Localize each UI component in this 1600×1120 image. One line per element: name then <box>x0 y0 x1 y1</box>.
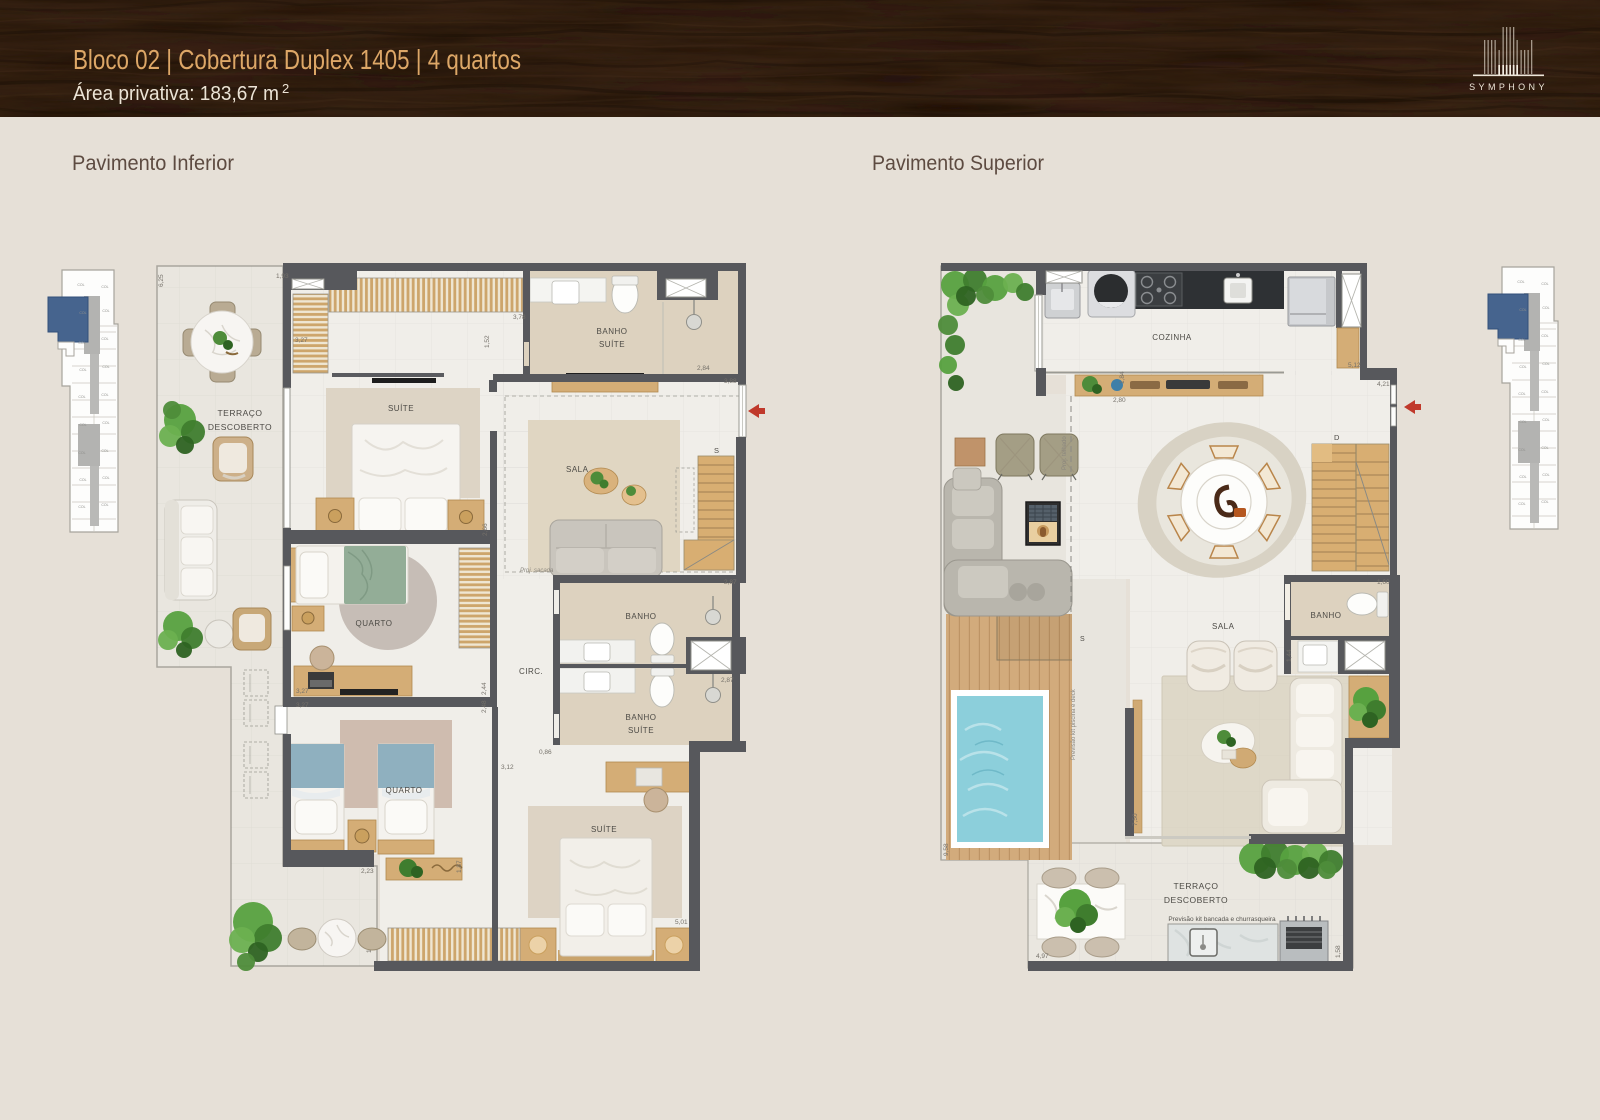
svg-text:S: S <box>714 446 719 455</box>
svg-text:COL: COL <box>1519 365 1526 369</box>
svg-text:SYMPHONY: SYMPHONY <box>1469 82 1548 92</box>
svg-text:SALA: SALA <box>1212 622 1235 631</box>
svg-text:COL: COL <box>101 393 108 397</box>
svg-text:COL: COL <box>102 365 109 369</box>
svg-text:2,23: 2,23 <box>361 868 374 875</box>
svg-text:3,27: 3,27 <box>295 337 308 344</box>
svg-text:2,44: 2,44 <box>481 682 488 695</box>
svg-text:COL: COL <box>102 421 109 425</box>
svg-text:2,84: 2,84 <box>697 365 710 372</box>
svg-text:3,78: 3,78 <box>513 314 526 321</box>
svg-text:4,97: 4,97 <box>1036 953 1049 960</box>
svg-text:COL: COL <box>1541 446 1548 450</box>
svg-text:1,93: 1,93 <box>276 273 289 280</box>
svg-text:COL: COL <box>1542 418 1549 422</box>
svg-text:3,27: 3,27 <box>296 688 309 695</box>
svg-text:COL: COL <box>1519 475 1526 479</box>
svg-text:1,84: 1,84 <box>1119 371 1126 384</box>
svg-text:1,58: 1,58 <box>1335 945 1342 958</box>
svg-text:3,88: 3,88 <box>724 378 737 385</box>
svg-text:Proj. telhado: Proj. telhado <box>1062 436 1068 470</box>
svg-text:2,66: 2,66 <box>482 523 489 536</box>
svg-text:1,60: 1,60 <box>1377 579 1390 586</box>
svg-text:COL: COL <box>1542 362 1549 366</box>
svg-text:2,48: 2,48 <box>481 700 488 713</box>
svg-text:BANHO: BANHO <box>597 327 628 336</box>
svg-text:COZINHA: COZINHA <box>1152 333 1192 342</box>
svg-text:Proj. sacada: Proj. sacada <box>520 568 554 574</box>
svg-text:COL: COL <box>78 395 85 399</box>
svg-text:COL: COL <box>79 423 86 427</box>
svg-text:3,12: 3,12 <box>501 764 514 771</box>
svg-text:COL: COL <box>1541 390 1548 394</box>
svg-text:0,86: 0,86 <box>539 749 552 756</box>
svg-text:2: 2 <box>282 81 289 96</box>
svg-text:SUÍTE: SUÍTE <box>599 340 625 349</box>
svg-text:COL: COL <box>79 478 86 482</box>
svg-text:COL: COL <box>101 337 108 341</box>
svg-text:SALA: SALA <box>566 465 589 474</box>
svg-text:S: S <box>1080 636 1085 643</box>
svg-text:2,87: 2,87 <box>721 677 734 684</box>
svg-text:2,80: 2,80 <box>1113 397 1126 404</box>
svg-text:SUÍTE: SUÍTE <box>388 404 414 413</box>
svg-text:SUÍTE: SUÍTE <box>591 825 617 834</box>
svg-text:COL: COL <box>1542 306 1549 310</box>
svg-text:COL: COL <box>1542 473 1549 477</box>
svg-text:COL: COL <box>1517 280 1524 284</box>
svg-text:Previsão kit piscina e deck: Previsão kit piscina e deck <box>1071 688 1077 760</box>
svg-text:CIRC.: CIRC. <box>519 667 543 676</box>
svg-text:D: D <box>1334 433 1340 442</box>
svg-text:1,52: 1,52 <box>484 335 491 348</box>
svg-text:Área privativa: 183,67 m: Área privativa: 183,67 m <box>73 82 279 105</box>
svg-text:COL: COL <box>77 283 84 287</box>
svg-text:QUARTO: QUARTO <box>386 786 423 795</box>
svg-text:DESCOBERTO: DESCOBERTO <box>1164 895 1228 905</box>
svg-text:COL: COL <box>101 285 108 289</box>
svg-text:Pavimento Inferior: Pavimento Inferior <box>72 151 234 175</box>
svg-text:TERRAÇO: TERRAÇO <box>1173 881 1218 891</box>
svg-text:COL: COL <box>1519 420 1526 424</box>
svg-text:COL: COL <box>1541 282 1548 286</box>
svg-text:COL: COL <box>1518 448 1525 452</box>
svg-text:COL: COL <box>79 368 86 372</box>
svg-text:COL: COL <box>1541 500 1548 504</box>
svg-text:1,87: 1,87 <box>456 860 463 873</box>
svg-text:7,50: 7,50 <box>1132 813 1139 826</box>
svg-text:COL: COL <box>102 309 109 313</box>
svg-text:5,01: 5,01 <box>675 919 688 926</box>
svg-text:6,25: 6,25 <box>158 274 165 287</box>
svg-text:4,21: 4,21 <box>1377 381 1390 388</box>
svg-text:SUÍTE: SUÍTE <box>628 726 654 735</box>
svg-text:COL: COL <box>78 505 85 509</box>
svg-text:QUARTO: QUARTO <box>356 619 393 628</box>
svg-text:3,27: 3,27 <box>296 702 309 709</box>
svg-text:5,12: 5,12 <box>1348 362 1361 369</box>
svg-text:COL: COL <box>79 311 86 315</box>
svg-text:COL: COL <box>1518 338 1525 342</box>
svg-text:1,44: 1,44 <box>1286 649 1293 662</box>
svg-text:2,87: 2,87 <box>724 579 737 586</box>
svg-text:9,58: 9,58 <box>943 843 950 856</box>
svg-text:COL: COL <box>78 451 85 455</box>
svg-text:BANHO: BANHO <box>626 612 657 621</box>
svg-text:TERRAÇO: TERRAÇO <box>217 408 262 418</box>
svg-text:BANHO: BANHO <box>626 713 657 722</box>
svg-text:Previsão kit bancada e churras: Previsão kit bancada e churrasqueira <box>1168 916 1276 923</box>
svg-text:COL: COL <box>1541 334 1548 338</box>
svg-text:COL: COL <box>1518 392 1525 396</box>
svg-text:Bloco 02 | Cobertura Duplex 14: Bloco 02 | Cobertura Duplex 1405 | 4 qua… <box>73 44 521 75</box>
svg-text:COL: COL <box>102 476 109 480</box>
svg-text:DESCOBERTO: DESCOBERTO <box>208 422 272 432</box>
svg-text:Pavimento Superior: Pavimento Superior <box>872 151 1044 175</box>
svg-text:COL: COL <box>101 449 108 453</box>
svg-text:BANHO: BANHO <box>1311 611 1342 620</box>
svg-text:COL: COL <box>1519 308 1526 312</box>
svg-text:COL: COL <box>1518 502 1525 506</box>
svg-text:COL: COL <box>78 341 85 345</box>
svg-text:COL: COL <box>101 503 108 507</box>
